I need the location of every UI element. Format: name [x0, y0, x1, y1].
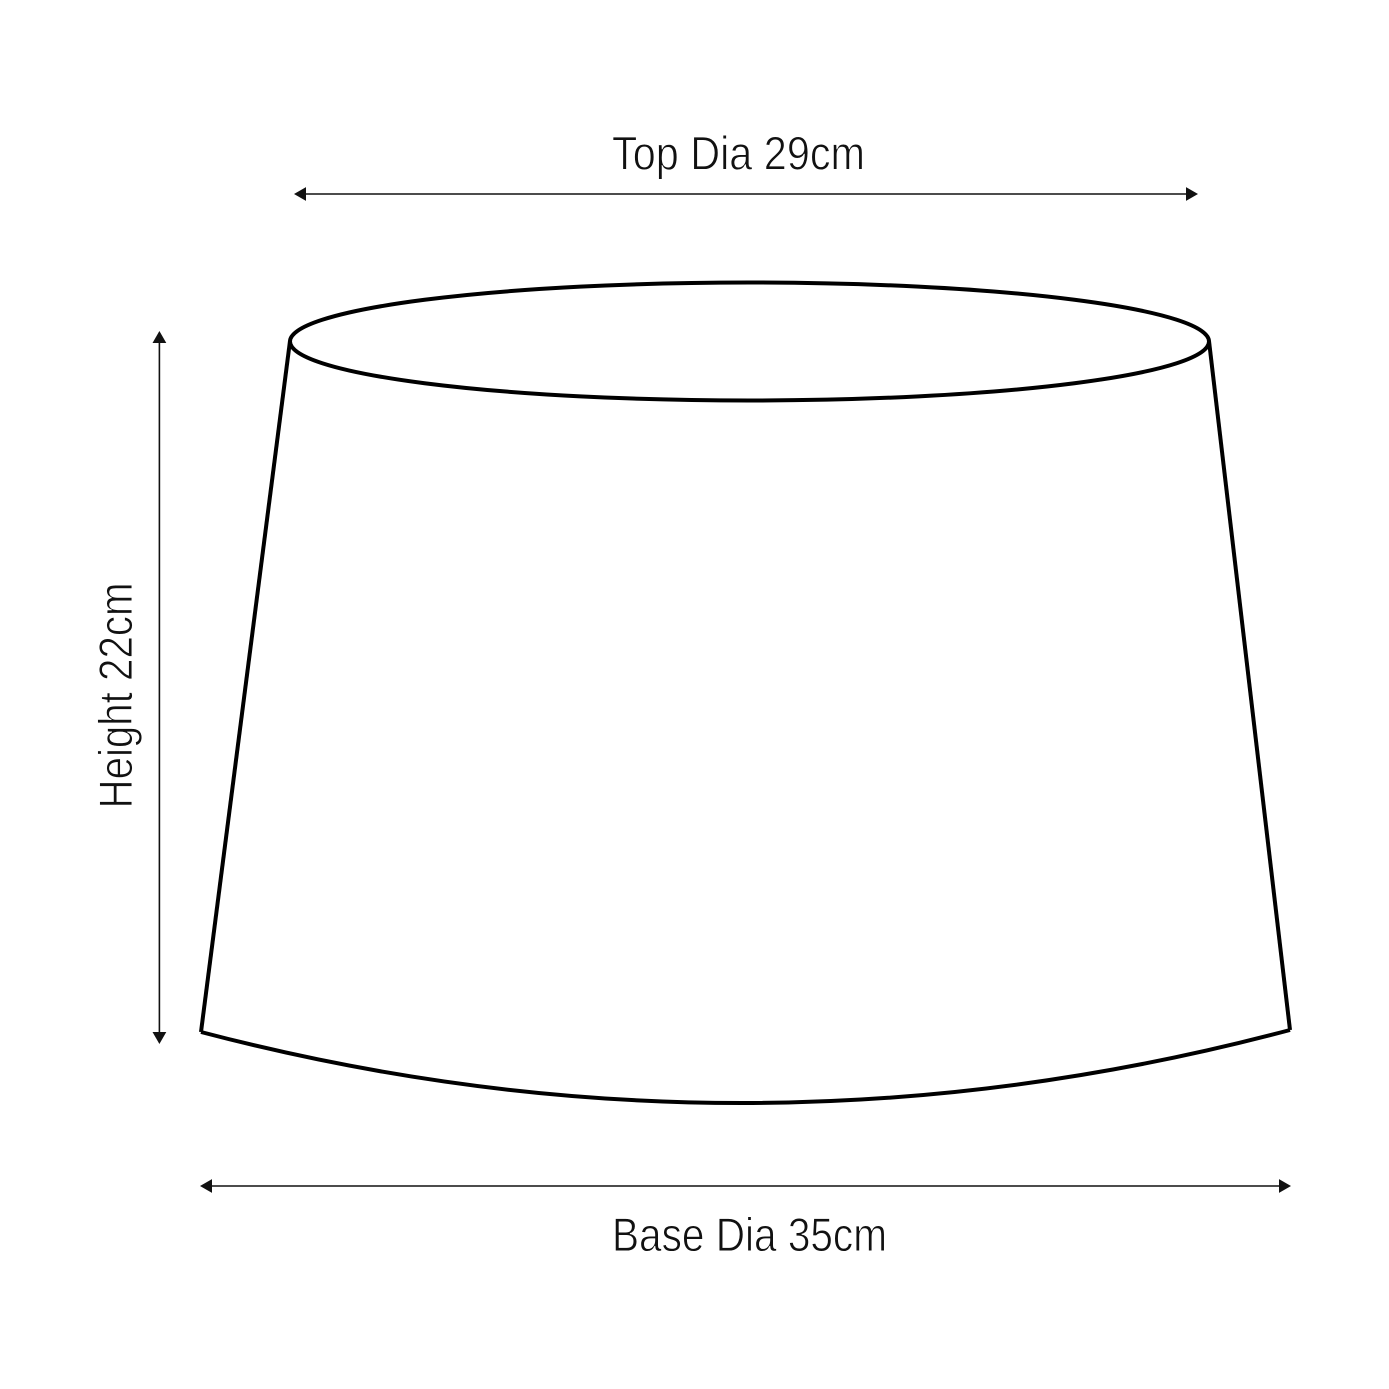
svg-text:Top Dia 29cm: Top Dia 29cm: [612, 127, 865, 180]
svg-text:Base Dia 35cm: Base Dia 35cm: [612, 1208, 887, 1261]
svg-text:Height 22cm: Height 22cm: [89, 583, 142, 809]
